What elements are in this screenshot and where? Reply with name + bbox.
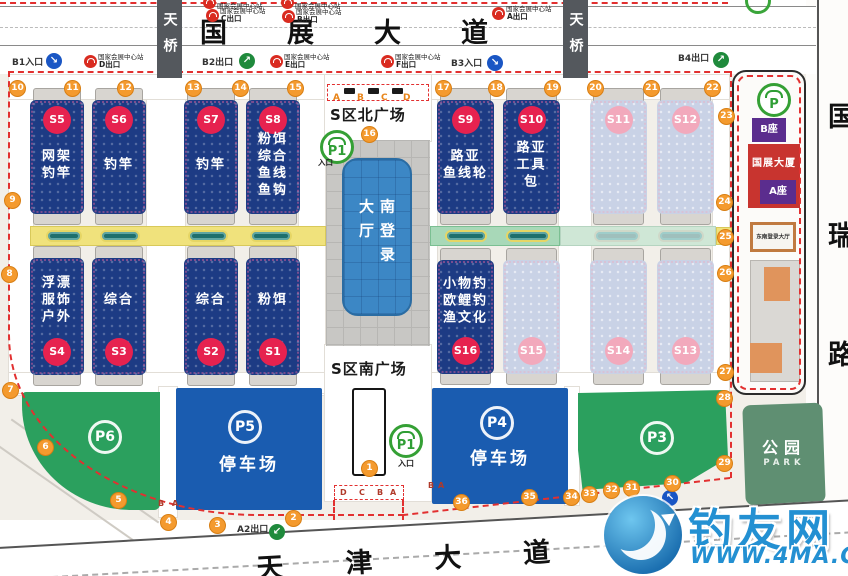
pedestrian-bridge-right: 天桥 [563,0,588,78]
bus-stop-letter: D [340,488,347,497]
bus-lane-line [402,500,404,520]
marker-15: 15 [287,80,304,97]
road-name-right: 国瑞路 [819,102,848,459]
watermark-fish-logo [604,496,682,574]
marker-6: 6 [37,439,54,456]
moving-walkway [445,230,487,242]
hall-category-label: 网架钓竿 [30,148,84,182]
hall-S5: S5网架钓竿 [30,100,84,214]
park-label-en: PARK [744,458,824,468]
bus-stop-letter: A [390,488,396,497]
metro-icon [84,55,97,68]
bridge-label: 天桥 [566,12,586,64]
metro-exit-label: C出口 [221,13,242,24]
pedestrian-bridge-left: 天桥 [157,0,182,78]
watermark-url: WWW.4MA.CN [690,544,848,569]
moving-walkway [506,230,550,242]
hall-category-label: 小物钓欧鲤钓渔文化 [437,276,494,327]
hall-category-label: 综合 [92,292,146,309]
gate-label-a2: A2出口 [237,522,268,535]
marker-12: 12 [117,80,134,97]
marker-21: 21 [643,80,660,97]
south-login-hall: 南登录大厅 [342,158,412,316]
marker-24: 24 [716,194,733,211]
moving-walkway [658,230,704,242]
south-login-hall-label: 南登录大厅 [356,199,398,276]
bus-stop-letter: A [333,93,340,103]
hall-category-label: 粉饵综合鱼线鱼钩 [246,131,300,199]
hall-S14: S14 [590,260,647,374]
hall-badge-S5: S5 [43,106,71,134]
parking-badge-p4: P4 [480,406,514,440]
metro-icon [206,9,219,22]
marker-9: 9 [4,192,21,209]
bus-stop-letter: C [381,93,388,103]
hall-category-label: 路亚工具包 [503,139,560,190]
fish-shape [616,508,666,560]
hall-S7: S7钓竿 [184,100,238,214]
hall-category-label: 钓竿 [184,156,238,173]
park-label-cn: 公园 [744,434,824,458]
hall-badge-S13: S13 [672,337,700,365]
entrance-label-south: 入口 [398,458,414,469]
marker-28: 28 [716,390,733,407]
parking-badge-label: P4 [487,415,507,431]
marker-17: 17 [435,80,452,97]
marker-4: 4 [160,514,177,531]
gate-label-b2: B2出口 [202,55,233,68]
venue-map: 国展大道 天津大道 国瑞路 天桥 天桥 S区北广场 S区南广场 南登录大厅 入口… [0,0,848,576]
marker-1: 1 [361,460,378,477]
moving-walkway [100,230,140,242]
metro-icon [381,55,394,68]
gate-arrow-icon-b2: ↗ [239,53,255,69]
parking-badge-label: P [769,98,779,111]
marker-26: 26 [717,265,734,282]
gate-label-b3: B3入口 [451,56,482,69]
parking-badge-label: P3 [647,430,667,446]
metro-exit-label: E出口 [285,59,305,70]
moving-walkway [188,230,228,242]
marker-18: 18 [488,80,505,97]
hall-S11: S11 [590,100,647,214]
marker-35: 35 [521,489,538,506]
parking-badge-label: P1 [328,145,347,158]
hall-badge-S8: S8 [259,106,287,134]
marker-23: 23 [718,108,735,125]
hall-S16: S16小物钓欧鲤钓渔文化 [437,260,494,374]
hall-S6: S6钓竿 [92,100,146,214]
metro-exit-label: A出口 [507,11,528,22]
bus-stop-letter: A [438,481,444,490]
hall-S9: S9路亚鱼线轮 [437,100,494,214]
hall-badge-S12: S12 [672,106,700,134]
bus-stop-letter: B [377,488,383,497]
marker-10: 10 [9,80,26,97]
bus-shelter-icon [368,88,379,94]
marker-29: 29 [716,455,733,472]
marker-11: 11 [64,80,81,97]
metro-exit-label: D出口 [99,59,120,70]
metro-exit-label: B出口 [297,14,318,25]
east-complex-boundary [737,75,801,390]
hall-category-label: 综合 [184,292,238,309]
bus-lane-line [333,500,335,520]
bus-stop-letter: B [428,481,434,490]
bridge-label: 天桥 [160,12,180,64]
marker-5: 5 [110,492,127,509]
hall-badge-S6: S6 [105,106,133,134]
marker-19: 19 [544,80,561,97]
bus-stop-letter: D [403,93,410,103]
marker-16: 16 [361,126,378,143]
gate-arrow-icon-b1: ↘ [46,53,62,69]
hall-badge-S15: S15 [518,337,546,365]
hall-S10: S10路亚工具包 [503,100,560,214]
boundary-top [0,2,728,4]
marker-7: 7 [2,382,19,399]
parking-lot-label: 停车场 [440,444,560,469]
hall-category-label: 钓竿 [92,156,146,173]
marker-22: 22 [704,80,721,97]
marker-36: 36 [453,494,470,511]
bus-stop-letter: B [357,93,364,103]
hall-S12: S12 [657,100,714,214]
marker-8: 8 [1,266,18,283]
parking-badge-east: P [757,83,791,117]
hall-badge-S11: S11 [605,106,633,134]
metro-icon [270,55,283,68]
hall-category-label: 粉饵 [246,292,300,309]
north-plaza-label: S区北广场 [330,104,406,125]
gate-label-b1: B1入口 [12,55,43,68]
gate-arrow-icon-b4: ↗ [713,52,729,68]
hall-badge-S16: S16 [452,337,480,365]
hall-S13: S13 [657,260,714,374]
watermark: 钓友网 WWW.4MA.CN [556,480,848,576]
marker-3: 3 [209,517,226,534]
gate-arrow-icon-b3: ↘ [487,55,503,71]
bus-stop-letter: C [359,488,365,497]
marker-20: 20 [587,80,604,97]
gate-label-b4: B4出口 [678,51,709,64]
bus-shelter-icon [344,88,355,94]
marker-13: 13 [185,80,202,97]
moving-walkway [46,230,82,242]
bus-stop-letter: B [158,499,164,508]
hall-category-label: 路亚鱼线轮 [437,148,494,182]
marker-14: 14 [232,80,249,97]
marker-25: 25 [717,229,734,246]
marker-2: 2 [285,510,302,527]
metro-icon [492,7,505,20]
entrance-label-north: 入口 [318,157,333,168]
boundary-north [8,71,730,73]
hall-S8: S8粉饵综合鱼线鱼钩 [246,100,300,214]
moving-walkway [250,230,292,242]
gate-arrow-icon-a2: ↙ [269,524,285,540]
bus-stop-letter: A [172,499,178,508]
bus-shelter-icon [392,88,403,94]
hall-S15: S15 [503,260,560,374]
metro-exit-label: F出口 [396,59,416,70]
hall-badge-S10: S10 [518,106,546,134]
moving-walkway [594,230,640,242]
metro-icon [282,10,295,23]
marker-27: 27 [717,364,734,381]
hall-badge-S14: S14 [605,337,633,365]
hall-badge-S7: S7 [197,106,225,134]
parking-badge-p3: P3 [640,421,674,455]
hall-badge-S9: S9 [452,106,480,134]
